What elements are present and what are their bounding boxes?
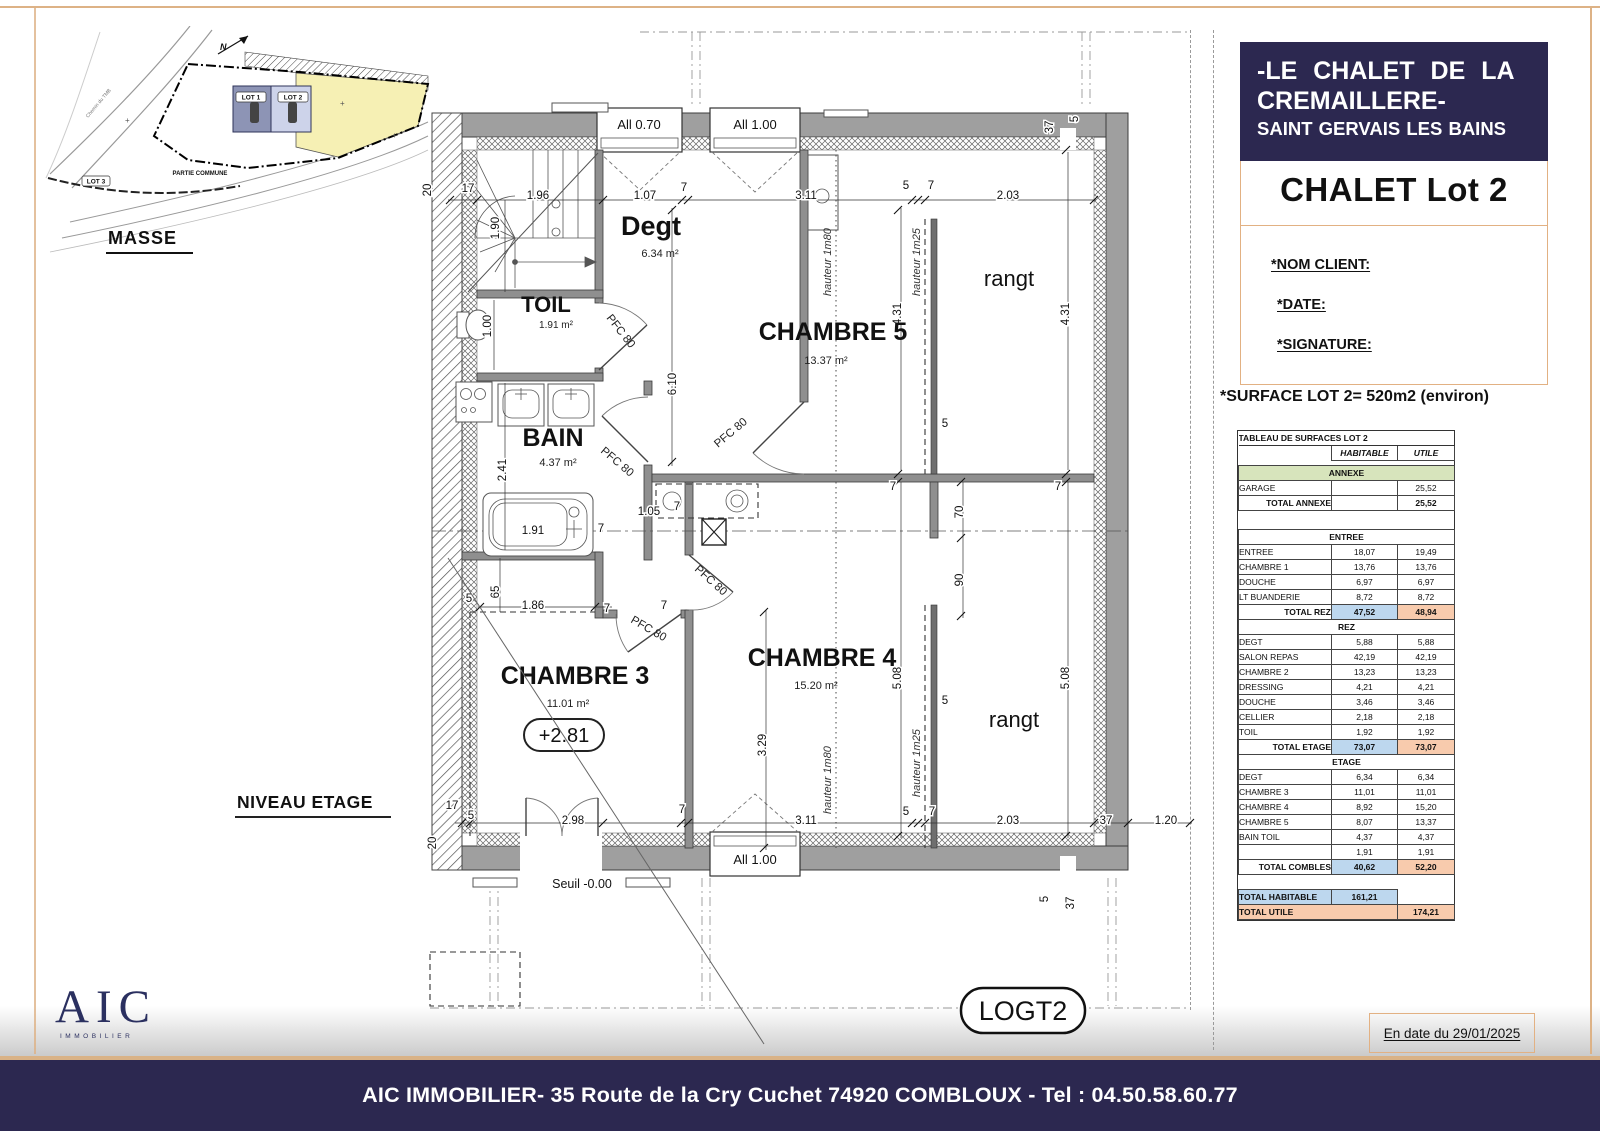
table-row: CHAMBRE 48,9215,20 (1239, 800, 1455, 815)
svg-text:2.41: 2.41 (497, 459, 509, 481)
svg-text:17: 17 (462, 183, 475, 195)
svg-text:3.11: 3.11 (795, 815, 817, 827)
svg-text:1.00: 1.00 (482, 315, 494, 337)
svg-text:65: 65 (490, 586, 502, 599)
footer-text: AIC IMMOBILIER- 35 Route de la Cry Cuche… (362, 1083, 1238, 1108)
svg-text:PFC 80: PFC 80 (604, 312, 637, 350)
svg-text:hauteur 1m80: hauteur 1m80 (822, 745, 834, 814)
car-icon (288, 102, 297, 123)
svg-text:1.90: 1.90 (490, 217, 502, 239)
svg-text:3.11: 3.11 (795, 190, 817, 202)
svg-text:1.07: 1.07 (634, 190, 656, 202)
svg-text:5: 5 (942, 418, 948, 430)
svg-text:90: 90 (954, 574, 966, 587)
table-row: CHAMBRE 311,0111,01 (1239, 785, 1455, 800)
project-title-banner: -LE CHALET DE LA CREMAILLERE- SAINT GERV… (1240, 42, 1548, 161)
lot1-label: LOT 1 (242, 95, 261, 102)
divider (1241, 225, 1547, 226)
svg-text:5: 5 (466, 593, 472, 605)
svg-text:1.91: 1.91 (522, 525, 544, 537)
logt-label: LOGT2 (979, 996, 1068, 1026)
frame-left-line (34, 6, 36, 1054)
table-row: ENTREE (1239, 530, 1455, 545)
bathroom-fixtures (456, 310, 758, 556)
svg-text:37: 37 (1044, 121, 1056, 134)
window-label: All 1.00 (733, 117, 776, 132)
svg-text:PFC 80: PFC 80 (598, 445, 636, 479)
lot-title: CHALET Lot 2 (1241, 171, 1547, 209)
svg-text:Degt: Degt (621, 211, 681, 241)
svg-text:7: 7 (679, 804, 685, 816)
table-row: BAIN TOIL4,374,37 (1239, 830, 1455, 845)
table-row: TOTAL COMBLES40,6252,20 (1239, 860, 1455, 875)
lot2-label: LOT 2 (284, 95, 303, 102)
svg-text:6.34 m²: 6.34 m² (641, 248, 679, 260)
section-line (448, 558, 764, 1044)
date-box-label: En date du 29/01/2025 (1384, 1026, 1521, 1041)
plan-sheet: Chemin du TMB LOT 1 LOT 2 LOT 3 PARTIE C… (0, 0, 1600, 1131)
table-row: DOUCHE3,463,46 (1239, 695, 1455, 710)
project-subtitle: SAINT GERVAIS LES BAINS (1257, 118, 1548, 140)
table-row: CELLIER2,182,18 (1239, 710, 1455, 725)
car-icon (250, 102, 259, 123)
svg-text:PFC 80: PFC 80 (712, 416, 750, 450)
svg-text:17: 17 (446, 800, 459, 812)
frame-right-line (1590, 6, 1592, 1054)
svg-text:CHAMBRE 3: CHAMBRE 3 (501, 662, 650, 690)
masse-title: MASSE (106, 228, 193, 254)
logo-text: AIC (55, 983, 157, 1031)
floor-plan-svg: All 0.70 All 1.00 All 1.00 Seuil -0.00 (415, 28, 1210, 1050)
svg-text:5: 5 (1039, 896, 1051, 902)
table-row: ENTREE18,0719,49 (1239, 545, 1455, 560)
svg-text:4.37 m²: 4.37 m² (539, 457, 577, 469)
table-row: HABITABLEUTILE (1239, 446, 1455, 461)
svg-text:1.91 m²: 1.91 m² (539, 320, 574, 331)
svg-text:PFC 80: PFC 80 (629, 614, 669, 644)
dashed-separator-2 (1213, 30, 1214, 1050)
client-name-field[interactable]: *NOM CLIENT: (1271, 257, 1547, 273)
svg-text:5: 5 (903, 180, 909, 192)
svg-text:4.31: 4.31 (1060, 303, 1072, 325)
svg-text:rangt: rangt (984, 266, 1034, 291)
party-wall-hatch (432, 113, 462, 870)
table-row: DOUCHE6,976,97 (1239, 575, 1455, 590)
date-box: En date du 29/01/2025 (1369, 1013, 1535, 1053)
table-row: TOTAL REZ47,5248,94 (1239, 605, 1455, 620)
table-row: DEGT6,346,34 (1239, 770, 1455, 785)
table-row: 1,911,91 (1239, 845, 1455, 860)
svg-text:37: 37 (1065, 897, 1077, 910)
svg-text:1.96: 1.96 (527, 190, 549, 202)
seuil-label: Seuil -0.00 (552, 877, 612, 891)
table-row: TOTAL ANNEXE25,52 (1239, 496, 1455, 511)
table-row: REZ (1239, 620, 1455, 635)
svg-text:7: 7 (674, 501, 680, 513)
svg-text:+: + (125, 116, 130, 125)
svg-text:BAIN: BAIN (522, 424, 583, 452)
svg-text:1.20: 1.20 (1155, 815, 1177, 827)
lot2-parcel (296, 73, 428, 157)
svg-text:7: 7 (661, 600, 667, 612)
svg-text:7: 7 (681, 182, 687, 194)
svg-text:2.98: 2.98 (562, 815, 584, 827)
svg-text:hauteur 1m25: hauteur 1m25 (911, 728, 923, 797)
road-label: Chemin du TMB (85, 87, 113, 119)
svg-text:3.29: 3.29 (757, 734, 769, 756)
entry-door-opening (520, 832, 602, 878)
masse-site-plan-svg: Chemin du TMB LOT 1 LOT 2 LOT 3 PARTIE C… (40, 26, 430, 266)
partie-commune-label: PARTIE COMMUNE (173, 171, 228, 177)
window-label: All 0.70 (617, 117, 660, 132)
svg-text:+: + (392, 131, 397, 140)
table-title-row: TABLEAU DE SURFACES LOT 2 (1239, 431, 1455, 446)
svg-text:5: 5 (1069, 116, 1081, 122)
table-row: TOTAL HABITABLE161,21 (1239, 890, 1455, 905)
table-row: DEGT5,885,88 (1239, 635, 1455, 650)
svg-text:PFC 80: PFC 80 (692, 563, 729, 598)
table-row: SALON REPAS42,1942,19 (1239, 650, 1455, 665)
svg-text:20: 20 (422, 184, 434, 197)
svg-text:37: 37 (1100, 815, 1113, 827)
footer-bar: AIC IMMOBILIER- 35 Route de la Cry Cuche… (0, 1056, 1600, 1131)
svg-text:CHAMBRE 4: CHAMBRE 4 (748, 644, 897, 672)
svg-text:2.03: 2.03 (997, 815, 1019, 827)
svg-text:5: 5 (903, 806, 909, 818)
svg-text:7: 7 (928, 180, 934, 192)
window-label: All 1.00 (733, 852, 776, 867)
project-title-line1: -LE CHALET DE LA (1257, 56, 1548, 86)
aic-logo: AIC IMMOBILIER (55, 983, 157, 1040)
table-row (1239, 511, 1455, 530)
table-row: TOTAL UTILE174,21 (1239, 905, 1455, 920)
svg-text:6.10: 6.10 (667, 373, 679, 395)
table-row: CHAMBRE 58,0713,37 (1239, 815, 1455, 830)
client-fields: *NOM CLIENT: *DATE: *SIGNATURE: (1241, 239, 1547, 353)
title-block: -LE CHALET DE LA CREMAILLERE- SAINT GERV… (1240, 42, 1548, 385)
plan-title: NIVEAU ETAGE (235, 792, 391, 818)
svg-text:11.01 m²: 11.01 m² (547, 698, 590, 710)
svg-text:20: 20 (427, 837, 439, 850)
svg-text:7: 7 (604, 603, 610, 615)
svg-text:7: 7 (598, 523, 604, 535)
masse-north-label: N (220, 42, 227, 52)
table-row (1239, 875, 1455, 890)
table-row: DRESSING4,214,21 (1239, 680, 1455, 695)
surface-table-body: HABITABLEUTILEANNEXEGARAGE25,52TOTAL ANN… (1239, 446, 1455, 920)
svg-text:7: 7 (890, 481, 896, 493)
surface-table-box: TABLEAU DE SURFACES LOT 2 HABITABLEUTILE… (1237, 430, 1455, 921)
table-row: GARAGE25,52 (1239, 481, 1455, 496)
svg-text:5: 5 (468, 810, 474, 822)
frame-top-line (0, 6, 1600, 8)
svg-text:1.86: 1.86 (522, 600, 544, 612)
signature-field[interactable]: *SIGNATURE: (1277, 337, 1547, 353)
date-field[interactable]: *DATE: (1277, 297, 1547, 313)
table-row: ANNEXE (1239, 466, 1455, 481)
svg-text:13.37 m²: 13.37 m² (804, 355, 848, 367)
table-title: TABLEAU DE SURFACES LOT 2 (1239, 431, 1455, 446)
table-row: LT BUANDERIE8,728,72 (1239, 590, 1455, 605)
surface-note: *SURFACE LOT 2= 520m2 (environ) (1220, 388, 1489, 406)
svg-text:5: 5 (942, 695, 948, 707)
svg-text:15.20 m²: 15.20 m² (794, 680, 838, 692)
project-title-line2: CREMAILLERE- (1257, 86, 1548, 116)
staircase (468, 150, 598, 292)
svg-text:5.08: 5.08 (1060, 667, 1072, 689)
svg-text:7: 7 (1055, 481, 1061, 493)
svg-text:+: + (340, 99, 345, 108)
logo-subtext: IMMOBILIER (60, 1033, 157, 1040)
table-row: TOTAL ETAGE73,0773,07 (1239, 740, 1455, 755)
table-row: ETAGE (1239, 755, 1455, 770)
table-row: CHAMBRE 113,7613,76 (1239, 560, 1455, 575)
compass-icon: N (415, 635, 425, 794)
svg-text:hauteur 1m80: hauteur 1m80 (822, 227, 834, 296)
svg-text:2.03: 2.03 (997, 190, 1019, 202)
svg-text:rangt: rangt (989, 707, 1039, 732)
svg-text:7: 7 (929, 806, 935, 818)
surface-table: TABLEAU DE SURFACES LOT 2 HABITABLEUTILE… (1238, 431, 1455, 920)
svg-text:TOIL: TOIL (521, 292, 571, 317)
table-row: CHAMBRE 213,2313,23 (1239, 665, 1455, 680)
lot3-label: LOT 3 (87, 179, 106, 186)
table-row: TOIL1,921,92 (1239, 725, 1455, 740)
svg-text:1.05: 1.05 (638, 506, 660, 518)
svg-text:CHAMBRE 5: CHAMBRE 5 (759, 318, 908, 346)
svg-text:70: 70 (954, 506, 966, 519)
svg-text:hauteur 1m25: hauteur 1m25 (911, 227, 923, 296)
